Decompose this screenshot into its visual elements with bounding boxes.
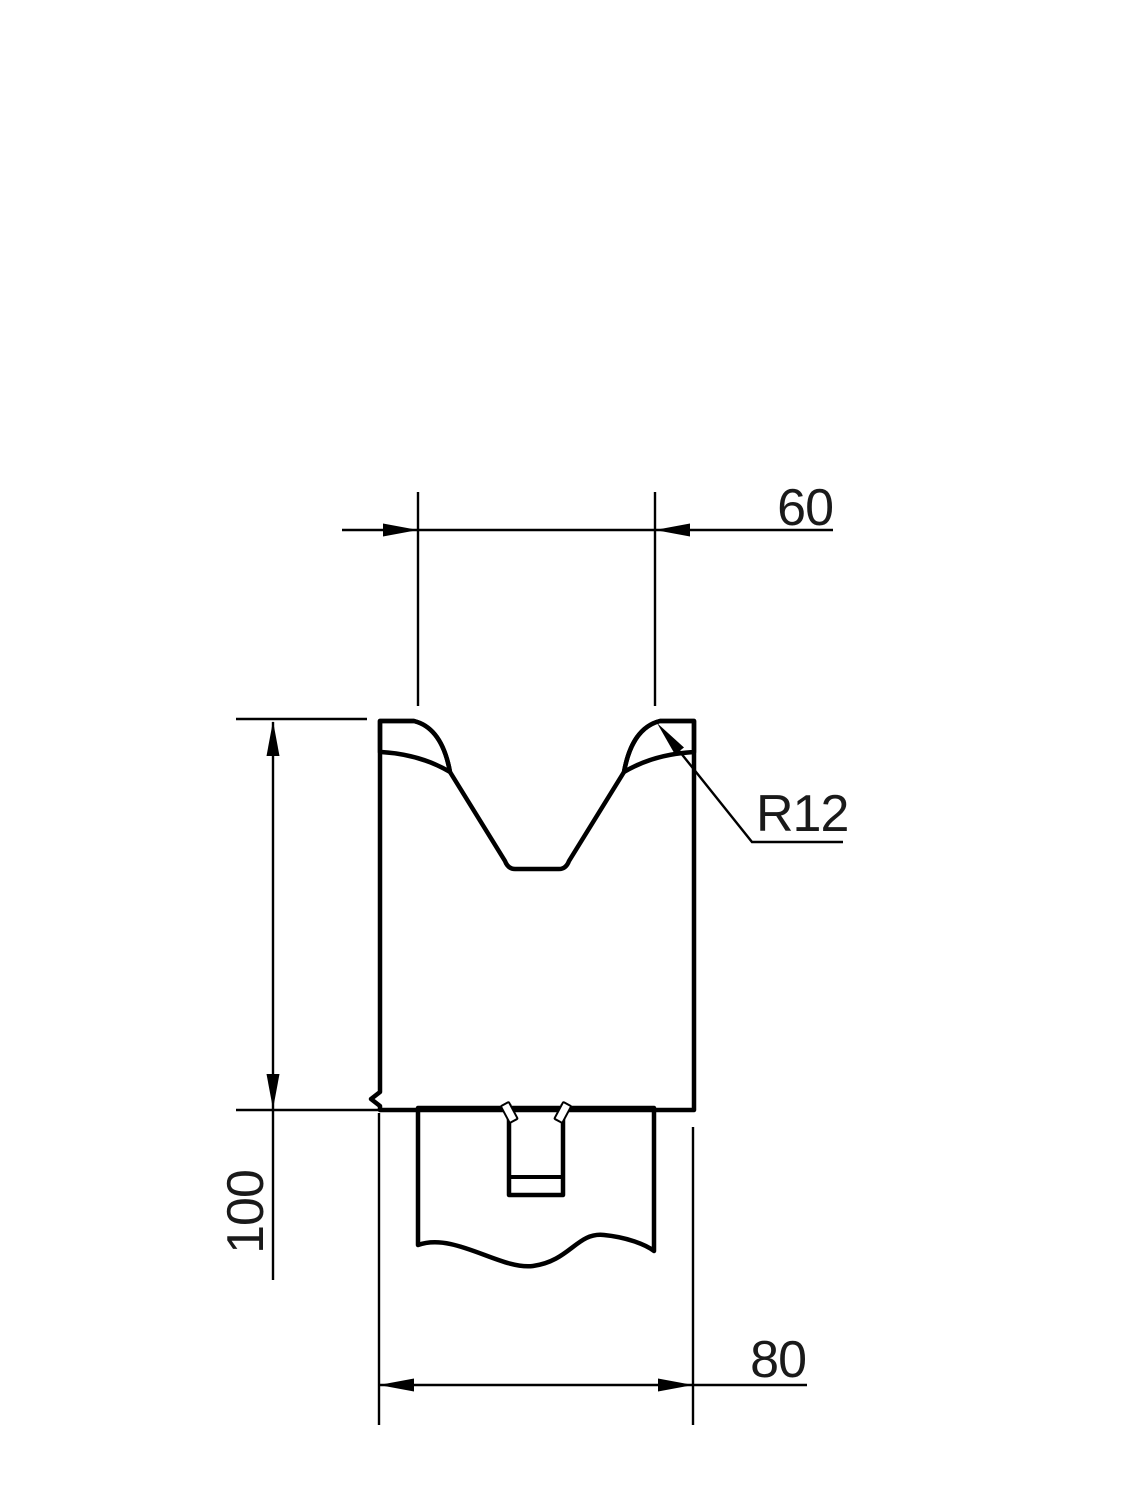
dimension-top-width: 60 (342, 479, 833, 706)
arrow-up-left-icon (657, 723, 684, 755)
dimension-bottom-width: 80 (379, 1113, 807, 1425)
left-corner-radius-shading (380, 721, 450, 772)
arrow-up-icon (267, 721, 280, 756)
die-body-shape (371, 721, 694, 1110)
slot-highlight-band (512, 1179, 560, 1192)
dimension-label-bottom-width: 80 (750, 1331, 806, 1389)
dimension-label-corner-radius: R12 (756, 785, 848, 843)
dimension-label-body-height: 100 (217, 1170, 275, 1254)
arrow-left-icon (379, 1379, 414, 1392)
dimension-label-top-width: 60 (777, 479, 833, 537)
right-corner-radius-shading (624, 721, 694, 772)
technical-drawing: 60 R12 100 80 (0, 0, 1124, 1500)
arrow-right-icon (383, 524, 418, 537)
dimension-body-height: 100 (217, 719, 380, 1280)
slot-right-corner-tick (554, 1102, 571, 1123)
dimension-corner-radius: R12 (657, 723, 848, 843)
arrow-down-icon (267, 1074, 280, 1109)
arrow-left-icon (655, 524, 690, 537)
drawing-canvas: 60 R12 100 80 (0, 0, 1124, 1500)
arrow-right-icon (658, 1379, 693, 1392)
slot-left-corner-tick (501, 1102, 518, 1123)
